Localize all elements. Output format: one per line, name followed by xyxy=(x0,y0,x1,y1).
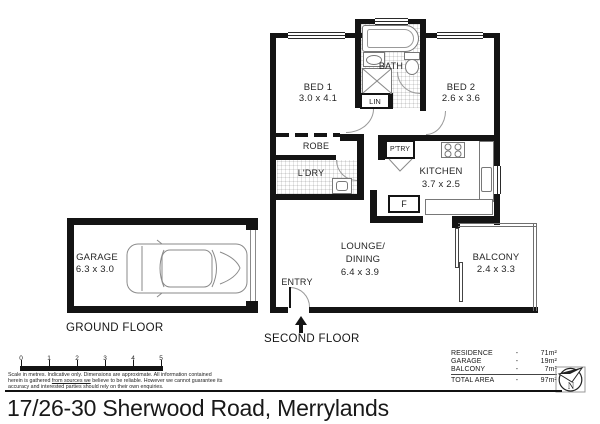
pantry-bifold-door xyxy=(389,159,412,171)
table-row: BALCONY - 7m² xyxy=(451,366,557,375)
plan-title: 17/26-30 Sherwood Road, Merrylands xyxy=(7,395,389,422)
table-row: RESIDENCE - 71m² xyxy=(451,350,557,358)
table-row: TOTAL AREA - 97m² xyxy=(451,377,557,385)
disclaimer: Scale in metres. Indicative only. Dimens… xyxy=(8,372,232,390)
stove-burners xyxy=(445,144,461,157)
shower-x xyxy=(363,69,391,93)
table-row: GARAGE - 19m² xyxy=(451,358,557,366)
floor-plan-page: LIN P'TRY F BED 1 3.0 x 4.1 BED 2 2.6 x … xyxy=(0,0,600,424)
scale-bar-rule xyxy=(20,366,163,371)
car-illustration xyxy=(127,240,247,297)
area-table: RESIDENCE - 71m² GARAGE - 19m² BALCONY -… xyxy=(451,350,557,385)
divider-line xyxy=(5,390,562,392)
compass-n-label: N xyxy=(568,381,575,391)
